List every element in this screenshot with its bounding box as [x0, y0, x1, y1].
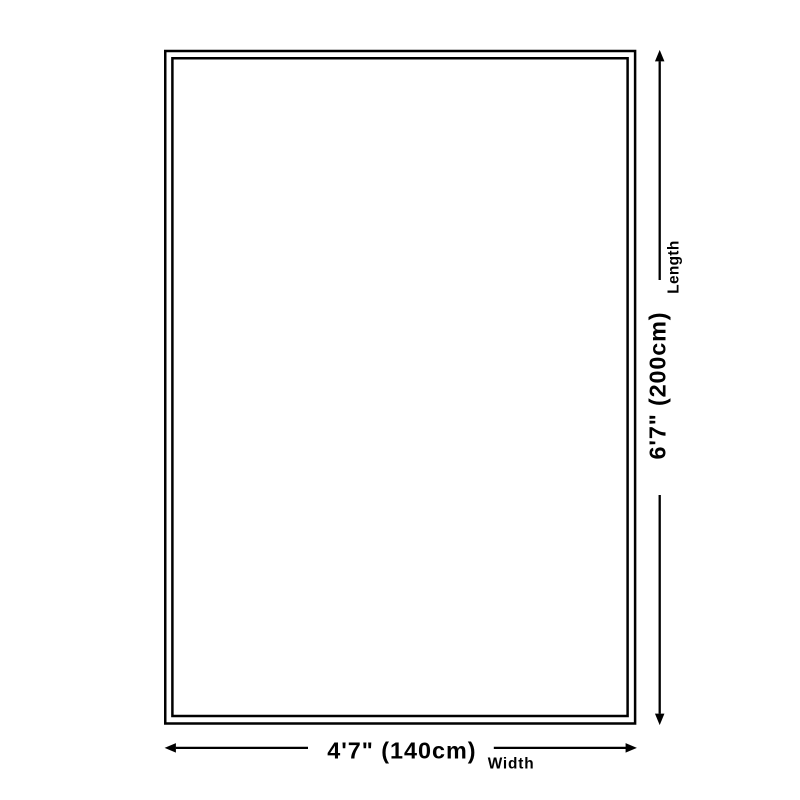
svg-text:6'7" (200cm): 6'7" (200cm)	[645, 312, 671, 459]
svg-text:Width: Width	[488, 756, 534, 773]
svg-text:4'7" (140cm): 4'7" (140cm)	[327, 738, 475, 764]
svg-text:Length: Length	[666, 241, 683, 294]
